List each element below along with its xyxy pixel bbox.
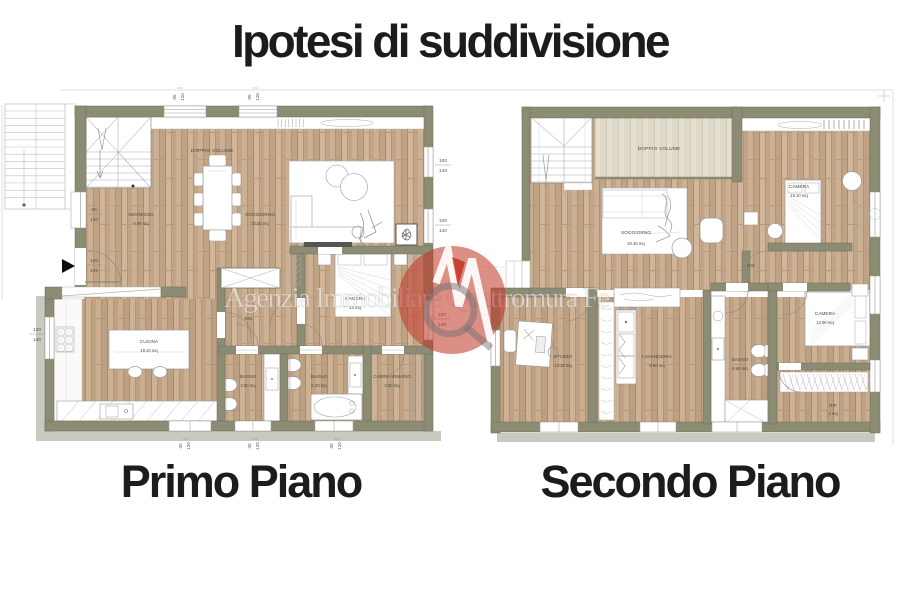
svg-text:140: 140 xyxy=(439,168,447,174)
svg-text:100: 100 xyxy=(439,218,447,224)
svg-text:5.98 mq: 5.98 mq xyxy=(133,221,149,226)
svg-text:140: 140 xyxy=(33,337,41,343)
svg-text:40: 40 xyxy=(247,443,252,449)
svg-text:DOPPIO VOLUME: DOPPIO VOLUME xyxy=(191,148,234,154)
svg-text:Ipotesi di suddivisione: Ipotesi di suddivisione xyxy=(232,15,670,67)
svg-text:SOGGIORNO: SOGGIORNO xyxy=(621,230,651,236)
svg-text:120: 120 xyxy=(180,93,185,101)
svg-text:120: 120 xyxy=(255,93,260,101)
svg-text:120: 120 xyxy=(255,442,260,450)
svg-text:95: 95 xyxy=(172,94,177,100)
svg-text:CABINA ARMADIO: CABINA ARMADIO xyxy=(373,374,411,379)
svg-text:Secondo Piano: Secondo Piano xyxy=(540,456,840,507)
svg-text:RIP: RIP xyxy=(829,403,837,408)
svg-text:120: 120 xyxy=(337,442,342,450)
svg-text:19.10 mq: 19.10 mq xyxy=(140,348,158,353)
svg-text:120: 120 xyxy=(33,327,41,333)
svg-text:INGRESSO: INGRESSO xyxy=(128,212,154,218)
svg-text:12.90 mq: 12.90 mq xyxy=(816,320,834,325)
svg-text:120: 120 xyxy=(186,442,191,450)
svg-text:CUCINA: CUCINA xyxy=(140,339,159,345)
svg-text:3 mq: 3 mq xyxy=(828,411,838,416)
svg-text:SOGGIORNO: SOGGIORNO xyxy=(245,212,275,218)
svg-text:5.20 mq: 5.20 mq xyxy=(311,383,327,388)
svg-text:37.50 mq: 37.50 mq xyxy=(251,221,269,226)
svg-text:STUDIO: STUDIO xyxy=(554,354,572,360)
svg-text:140: 140 xyxy=(90,217,98,223)
svg-text:LAVANDERIA: LAVANDERIA xyxy=(642,354,672,360)
svg-text:BAGNO: BAGNO xyxy=(732,357,749,362)
svg-text:13.15 mq: 13.15 mq xyxy=(554,363,572,368)
svg-text:DIS.: DIS. xyxy=(245,316,254,321)
svg-text:Primo Piano: Primo Piano xyxy=(121,456,362,507)
svg-text:DOPPIO VOLUME: DOPPIO VOLUME xyxy=(638,146,681,152)
svg-text:95: 95 xyxy=(247,94,252,100)
svg-text:20.40 mq: 20.40 mq xyxy=(627,241,645,246)
svg-text:16.10 mq: 16.10 mq xyxy=(790,193,808,198)
svg-text:100: 100 xyxy=(90,258,98,264)
svg-text:6.90 mq: 6.90 mq xyxy=(732,366,748,371)
svg-text:40: 40 xyxy=(329,443,334,449)
svg-text:40: 40 xyxy=(178,443,183,449)
svg-text:8.90 mq: 8.90 mq xyxy=(649,363,665,368)
svg-text:3.80 mq: 3.80 mq xyxy=(240,383,256,388)
svg-text:BAGNO: BAGNO xyxy=(240,374,257,379)
svg-text:BAGNO: BAGNO xyxy=(311,374,328,379)
svg-text:CAMERA: CAMERA xyxy=(815,311,836,317)
svg-text:DIS: DIS xyxy=(747,263,755,268)
svg-text:CAMERA: CAMERA xyxy=(789,184,810,190)
svg-text:3.90 mq: 3.90 mq xyxy=(384,383,400,388)
svg-text:235: 235 xyxy=(90,268,98,274)
svg-text:140: 140 xyxy=(439,228,447,234)
svg-text:100: 100 xyxy=(439,158,447,164)
svg-text:80: 80 xyxy=(91,207,97,213)
